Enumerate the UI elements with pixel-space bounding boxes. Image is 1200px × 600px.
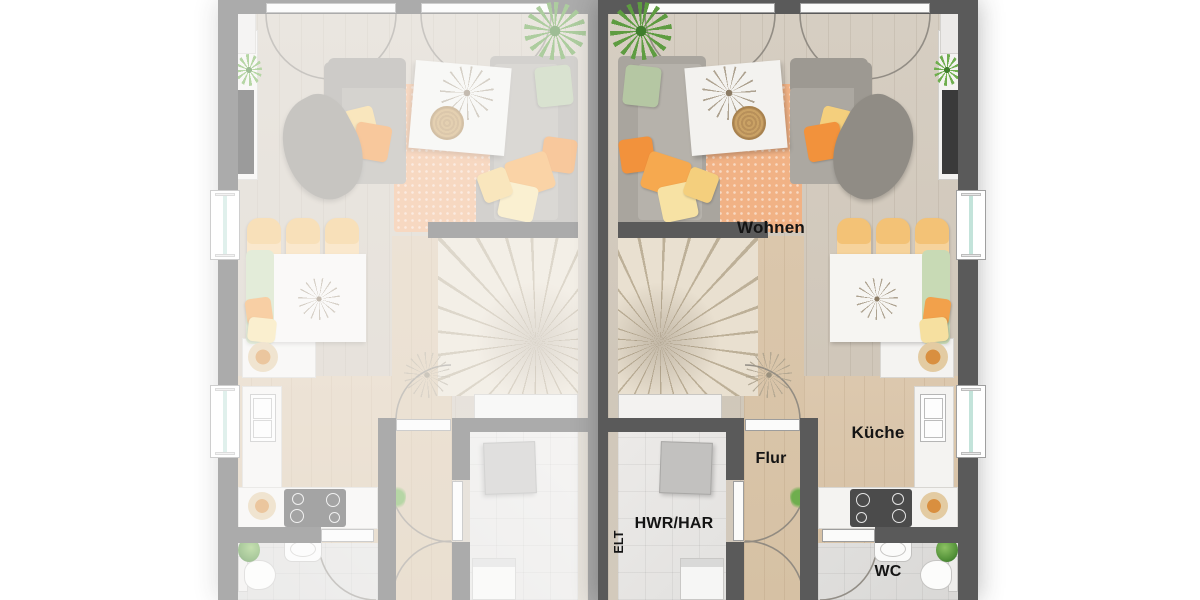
- interior-wall: [726, 542, 744, 600]
- window-glass: [223, 195, 227, 255]
- cooktop: [284, 489, 346, 527]
- interior-wall: [452, 432, 470, 480]
- television: [942, 90, 958, 174]
- unit-right: Wohnen Küche Flur HWR/HAR ELT WC: [598, 0, 978, 600]
- floorplan: Wohnen Küche Flur HWR/HAR ELT WC: [218, 0, 978, 600]
- burner: [290, 509, 304, 523]
- room-label-elt: ELT: [612, 530, 626, 553]
- table-plant-decor: [298, 278, 340, 320]
- potted-plant: [934, 54, 960, 86]
- room-label-wc: WC: [874, 563, 901, 581]
- stair-wall: [428, 222, 578, 238]
- toilet: [244, 560, 276, 590]
- dining-chair: [286, 218, 320, 258]
- pillow-pale-yellow: [919, 317, 949, 344]
- window-frame: [215, 254, 235, 257]
- window-frame: [961, 388, 981, 391]
- unit-left: [218, 0, 598, 600]
- hall-door: [745, 419, 800, 431]
- under-stair-closet: [474, 394, 578, 420]
- table-plant-decor: [856, 278, 898, 320]
- dining-chair: [325, 218, 359, 258]
- washing-machine: [680, 558, 724, 600]
- window-glass: [969, 195, 973, 255]
- burner: [292, 493, 304, 505]
- burner: [892, 509, 906, 523]
- wc-door: [822, 529, 875, 542]
- interior-wall: [238, 527, 321, 543]
- kitchen-sink: [250, 394, 276, 442]
- interior-wall: [452, 418, 588, 432]
- washing-machine: [472, 558, 516, 600]
- window-frame: [961, 254, 981, 257]
- pillow-green: [622, 64, 662, 108]
- rattan-tray: [430, 106, 464, 140]
- interior-wall: [608, 418, 744, 432]
- window: [210, 190, 240, 260]
- dried-plant-decor: [746, 352, 792, 398]
- fruit-bowl: [248, 342, 278, 372]
- kitchen-sink: [920, 394, 946, 442]
- floor-plan-image: Wohnen Küche Flur HWR/HAR ELT WC: [0, 0, 1200, 600]
- window-frame: [215, 452, 235, 455]
- window-frame: [961, 193, 981, 196]
- utility-door: [733, 481, 744, 541]
- fruit-bowl: [920, 492, 948, 520]
- interior-wall: [378, 418, 396, 600]
- window: [956, 190, 986, 260]
- utility-door: [452, 481, 463, 541]
- potted-plant: [236, 54, 262, 86]
- window-glass: [223, 390, 227, 452]
- interior-wall: [726, 432, 744, 480]
- dried-plant-decor: [404, 352, 450, 398]
- window-frame: [215, 388, 235, 391]
- water-heater-unit: [659, 441, 713, 495]
- window: [210, 385, 240, 458]
- window-frame: [215, 193, 235, 196]
- terrace-double-door: [266, 3, 396, 13]
- rattan-tray: [732, 106, 766, 140]
- interior-wall: [875, 527, 958, 543]
- window: [956, 385, 986, 458]
- room-label-wohnen: Wohnen: [737, 218, 805, 238]
- fruit-bowl: [918, 342, 948, 372]
- burner: [856, 512, 867, 523]
- burner: [329, 512, 340, 523]
- large-fern-plant: [610, 2, 672, 60]
- toilet: [920, 560, 952, 590]
- room-label-kueche: Küche: [852, 423, 905, 443]
- party-wall: [588, 0, 598, 600]
- terrace-double-door: [800, 3, 930, 13]
- interior-wall: [800, 418, 818, 600]
- party-wall: [598, 0, 608, 600]
- exterior-wall-side: [218, 0, 238, 600]
- wc-door: [321, 529, 374, 542]
- exterior-wall-side: [958, 0, 978, 600]
- water-heater-unit: [483, 441, 537, 495]
- room-label-flur: Flur: [755, 450, 786, 468]
- burner: [856, 493, 870, 507]
- large-fern-plant: [524, 2, 586, 60]
- interior-wall: [452, 542, 470, 600]
- television: [238, 90, 254, 174]
- cooktop: [850, 489, 912, 527]
- under-stair-closet: [618, 394, 722, 420]
- fruit-bowl: [248, 492, 276, 520]
- dining-chair: [876, 218, 910, 258]
- pillow-green: [534, 64, 574, 108]
- window-frame: [961, 452, 981, 455]
- dining-chair: [837, 218, 871, 258]
- burner: [326, 493, 340, 507]
- burner: [892, 493, 904, 505]
- room-label-hwr: HWR/HAR: [635, 515, 714, 533]
- pillow-pale-yellow: [247, 317, 277, 344]
- hall-door: [396, 419, 451, 431]
- window-glass: [969, 390, 973, 452]
